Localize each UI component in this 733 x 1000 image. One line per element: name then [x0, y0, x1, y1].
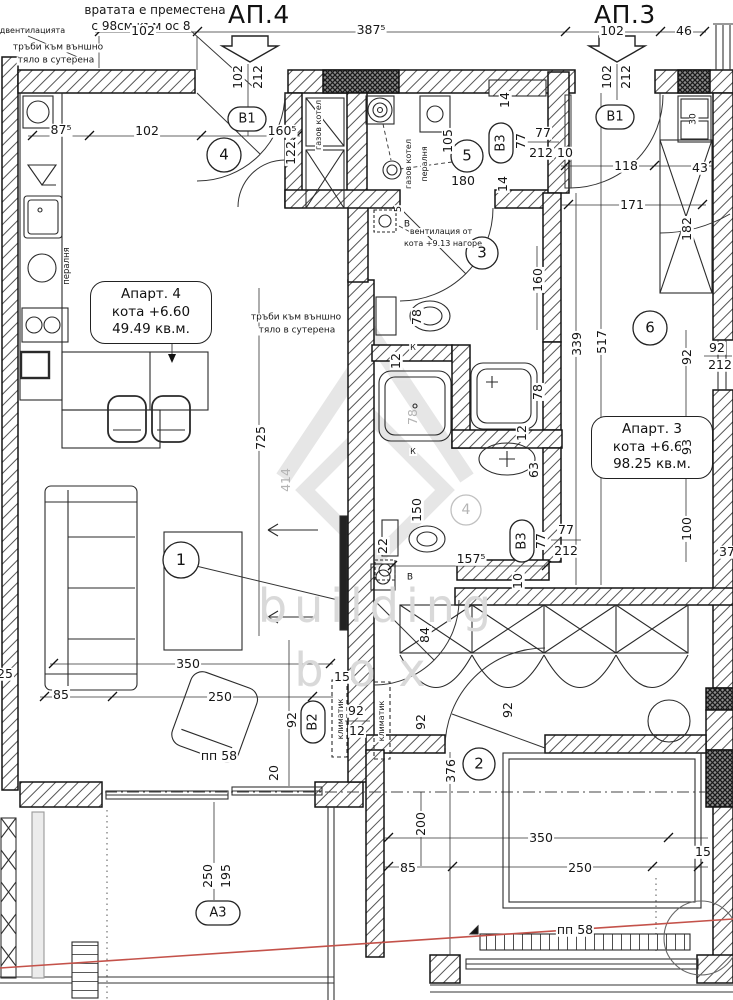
door-tag-a3: А3: [208, 907, 227, 920]
dim-label: 12: [348, 725, 366, 738]
dim-label: одвентилацията: [0, 27, 66, 35]
dim-label: 102: [232, 64, 245, 90]
room-number-4: 4: [218, 148, 230, 163]
dim-label: 160⁵: [267, 125, 298, 138]
dim-label: тръби към външно: [250, 314, 342, 323]
dim-label: 212: [707, 359, 733, 372]
dim-label: 182: [681, 216, 694, 242]
dim-label: 100: [681, 516, 694, 542]
dim-label: 85: [399, 862, 417, 875]
room-number-2: 2: [473, 757, 485, 772]
dim-label: 78: [407, 408, 420, 426]
dim-label: 78: [411, 308, 424, 326]
dim-label: 250: [202, 863, 215, 889]
dim-label: 43: [691, 162, 709, 175]
dim-label: 78: [532, 383, 545, 401]
dim-label: 63: [528, 461, 541, 479]
dim-label: 105: [442, 128, 455, 154]
dim-label: климатик: [337, 698, 345, 741]
dim-label: 212: [620, 64, 633, 90]
dim-label: 10: [556, 147, 574, 160]
dim-label: 15: [694, 846, 712, 859]
dim-label: 92: [708, 342, 726, 355]
dim-label: 77: [515, 132, 528, 150]
dim-label: 102: [599, 25, 625, 38]
dim-label: 10: [512, 572, 525, 590]
dim-label: 92: [415, 713, 428, 731]
dim-label: 12: [516, 424, 529, 442]
dim-label: 92: [286, 711, 299, 729]
dim-label: 250: [207, 691, 233, 704]
dim-label: пералня: [63, 246, 72, 286]
dim-label: 15: [333, 671, 351, 684]
room-number-4b: 4: [461, 503, 472, 517]
dim-label: 414: [280, 467, 293, 493]
dim-label: газов котел: [315, 99, 323, 151]
dim-label: 171: [619, 199, 645, 212]
dim-label: 102: [601, 64, 614, 90]
dim-label: 22: [377, 537, 390, 555]
dim-label: 725: [255, 425, 268, 451]
dim-label: В: [406, 574, 414, 583]
dim-label: пералня: [421, 145, 429, 182]
door-tag-b1-right: В1: [605, 111, 624, 124]
dim-label: 20: [268, 764, 281, 782]
dim-label: 212: [252, 64, 265, 90]
dim-label: 180: [450, 175, 476, 188]
dim-label: 30: [690, 112, 699, 125]
dim-label: 92: [502, 701, 515, 719]
dim-label: 250: [567, 862, 593, 875]
dim-label: 25: [0, 668, 14, 681]
dim-label: 350: [528, 832, 554, 845]
dim-label: тръби към външно: [12, 44, 104, 53]
dim-label: 46: [675, 25, 693, 38]
dim-label: 14: [497, 175, 510, 193]
dim-label: пп 58: [200, 750, 238, 763]
dim-label: вентилация от: [409, 228, 473, 236]
labels-layer: вратата е преместенас 98см към ос 8одвен…: [0, 0, 733, 1000]
dim-label: 517: [596, 329, 609, 355]
dim-label: кота +9.13 нагоре: [403, 240, 483, 248]
room-number-5: 5: [461, 149, 473, 164]
dim-label: 150: [411, 497, 424, 523]
door-tag-b3-bottom: В3: [516, 531, 529, 550]
dim-label: 77: [535, 532, 548, 550]
dim-label: тяло в сутерена: [258, 327, 337, 336]
dim-label: 87⁵: [50, 124, 73, 137]
dim-label: тяло в сутерена: [17, 57, 96, 66]
dim-label: 387⁵: [356, 24, 387, 37]
door-tag-b3-top: В3: [495, 133, 508, 152]
dim-label: 84: [419, 626, 432, 644]
room-number-3: 3: [476, 246, 488, 261]
dim-label: 118: [613, 160, 639, 173]
dim-label: 12: [390, 352, 403, 370]
dim-label: 157⁵: [456, 553, 487, 566]
dim-label: 376: [445, 758, 458, 784]
dim-label: К: [409, 448, 417, 456]
dim-label: 212: [528, 147, 554, 160]
dim-label: вратата е преместена: [83, 4, 226, 16]
dim-label: 77: [557, 524, 575, 537]
dim-label: пп 58: [556, 924, 594, 937]
dim-label: 102: [130, 25, 156, 38]
dim-label: К: [409, 344, 417, 352]
dim-label: 212: [553, 545, 579, 558]
dim-label: 37: [718, 546, 733, 559]
dim-label: климатик: [378, 700, 386, 743]
dim-label: 160: [532, 267, 545, 293]
dim-label: 14: [499, 91, 512, 109]
dim-label: газов котел: [405, 138, 413, 190]
dim-label: 122: [285, 140, 298, 166]
room-number-6: 6: [644, 321, 656, 336]
dim-label: 200: [415, 811, 428, 837]
floor-plan-canvas: building box АП.4 АП.3 Апарт. 4 кота +6.…: [0, 0, 733, 1000]
door-tag-b1-left: В1: [237, 113, 256, 126]
dim-label: 5: [394, 205, 404, 213]
dim-label: 85: [52, 689, 70, 702]
dim-label: 350: [175, 658, 201, 671]
dim-label: 102: [134, 125, 160, 138]
dim-label: 77: [534, 127, 552, 140]
room-number-1: 1: [175, 552, 187, 568]
dim-label: 92: [681, 348, 694, 366]
door-tag-b2: В2: [307, 712, 320, 731]
dim-label: 93: [681, 438, 694, 456]
dim-label: 92: [347, 705, 365, 718]
dim-label: 339: [571, 331, 584, 357]
dim-label: 195: [220, 863, 233, 889]
